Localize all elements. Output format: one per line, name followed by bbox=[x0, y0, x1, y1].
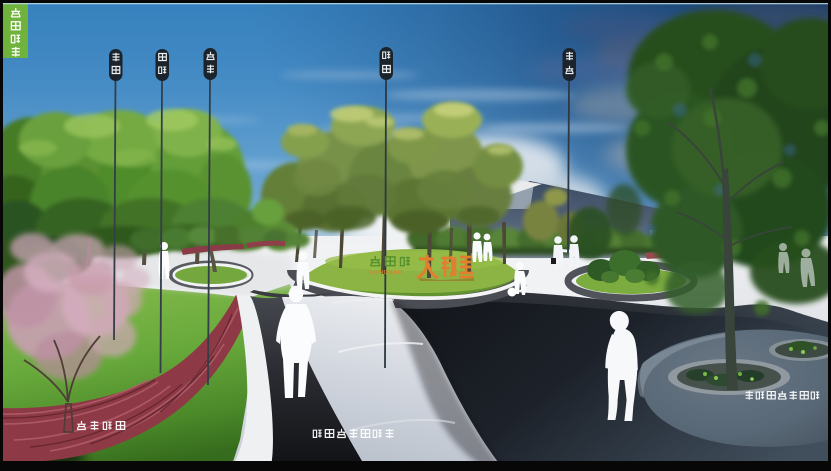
svg-text:LONGBAO: LONGBAO bbox=[370, 270, 403, 276]
